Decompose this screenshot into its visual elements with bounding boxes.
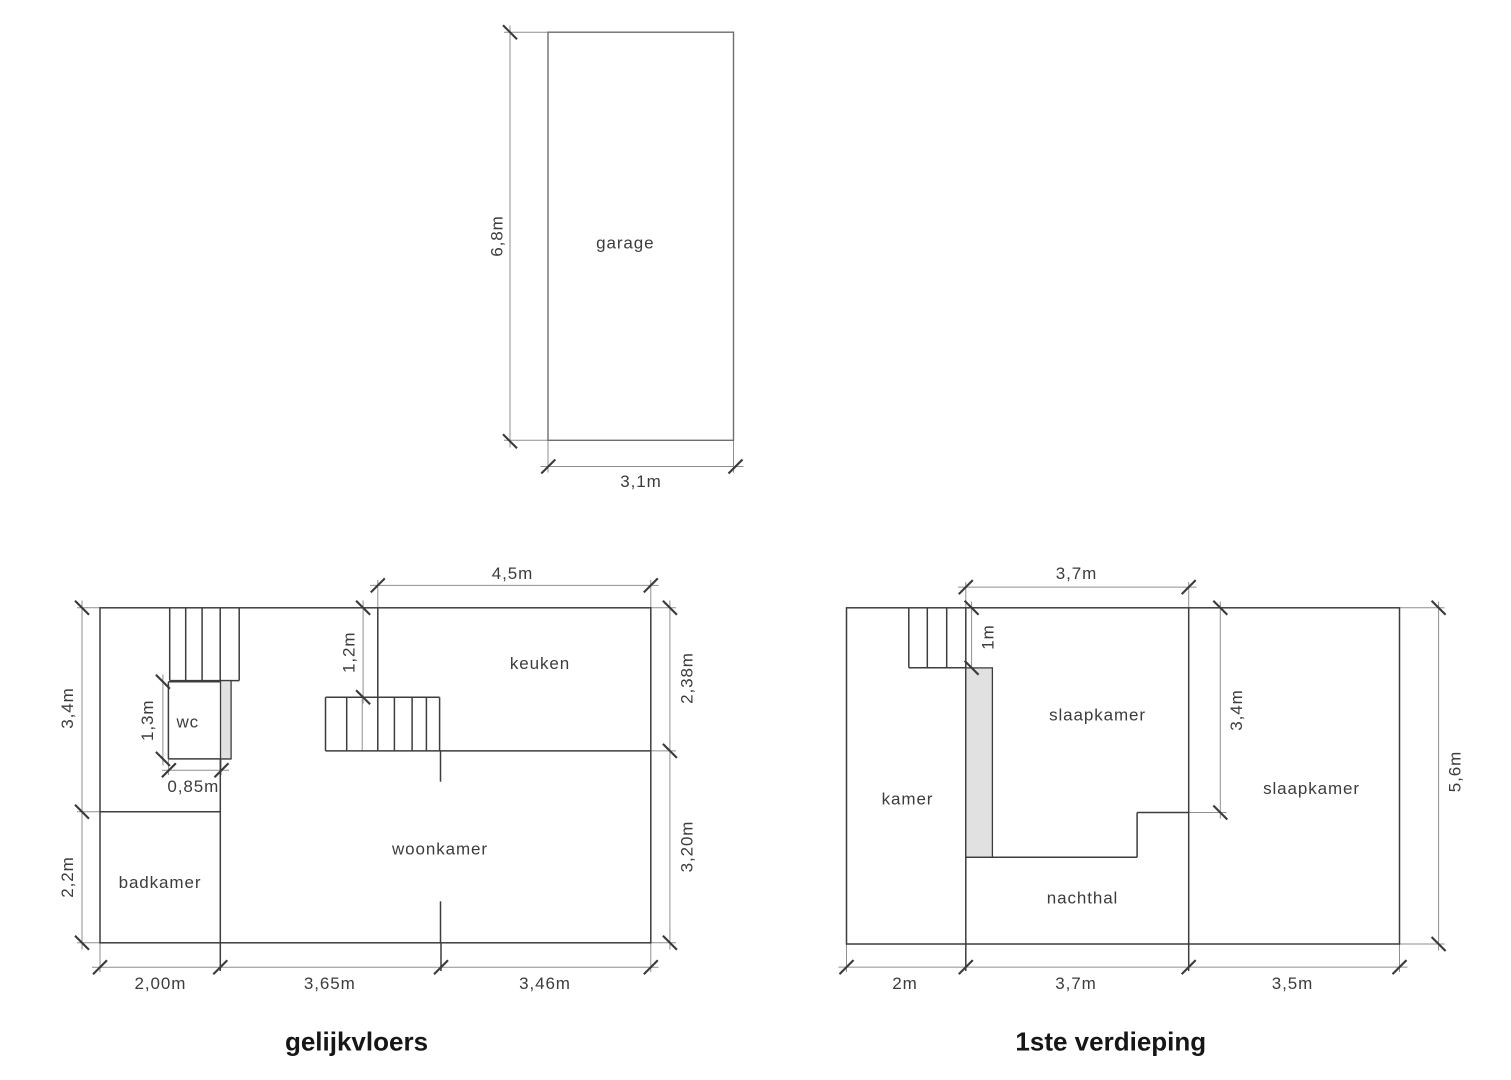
svg-text:3,7m: 3,7m <box>1055 974 1096 993</box>
svg-text:slaapkamer: slaapkamer <box>1049 706 1146 725</box>
svg-text:2m: 2m <box>892 974 917 993</box>
svg-text:slaapkamer: slaapkamer <box>1263 779 1360 798</box>
svg-text:3,4m: 3,4m <box>58 687 77 728</box>
svg-text:5,6m: 5,6m <box>1446 751 1465 792</box>
svg-text:3,7m: 3,7m <box>1056 564 1097 583</box>
svg-text:0,85m: 0,85m <box>167 777 219 796</box>
svg-text:2,2m: 2,2m <box>58 856 77 897</box>
svg-text:3,5m: 3,5m <box>1272 974 1313 993</box>
svg-text:3,20m: 3,20m <box>678 821 697 873</box>
svg-text:3,46m: 3,46m <box>519 974 571 993</box>
svg-text:woonkamer: woonkamer <box>391 840 488 859</box>
svg-text:wc: wc <box>176 713 200 732</box>
svg-text:garage: garage <box>596 234 654 253</box>
svg-text:nachthal: nachthal <box>1047 889 1118 908</box>
svg-text:3,65m: 3,65m <box>304 974 356 993</box>
svg-text:1m: 1m <box>979 624 998 649</box>
svg-text:badkamer: badkamer <box>119 873 202 892</box>
svg-text:3,1m: 3,1m <box>620 472 661 491</box>
svg-text:6,8m: 6,8m <box>488 215 507 256</box>
svg-text:3,4m: 3,4m <box>1227 689 1246 730</box>
svg-text:keuken: keuken <box>510 654 570 673</box>
svg-text:1,3m: 1,3m <box>138 700 157 741</box>
svg-text:2,00m: 2,00m <box>135 974 187 993</box>
svg-text:4,5m: 4,5m <box>492 564 533 583</box>
svg-text:gelijkvloers: gelijkvloers <box>285 1027 428 1057</box>
svg-text:kamer: kamer <box>882 790 934 809</box>
svg-text:2,38m: 2,38m <box>678 652 697 704</box>
svg-text:1,2m: 1,2m <box>340 632 359 673</box>
svg-text:1ste verdieping: 1ste verdieping <box>1015 1027 1206 1057</box>
